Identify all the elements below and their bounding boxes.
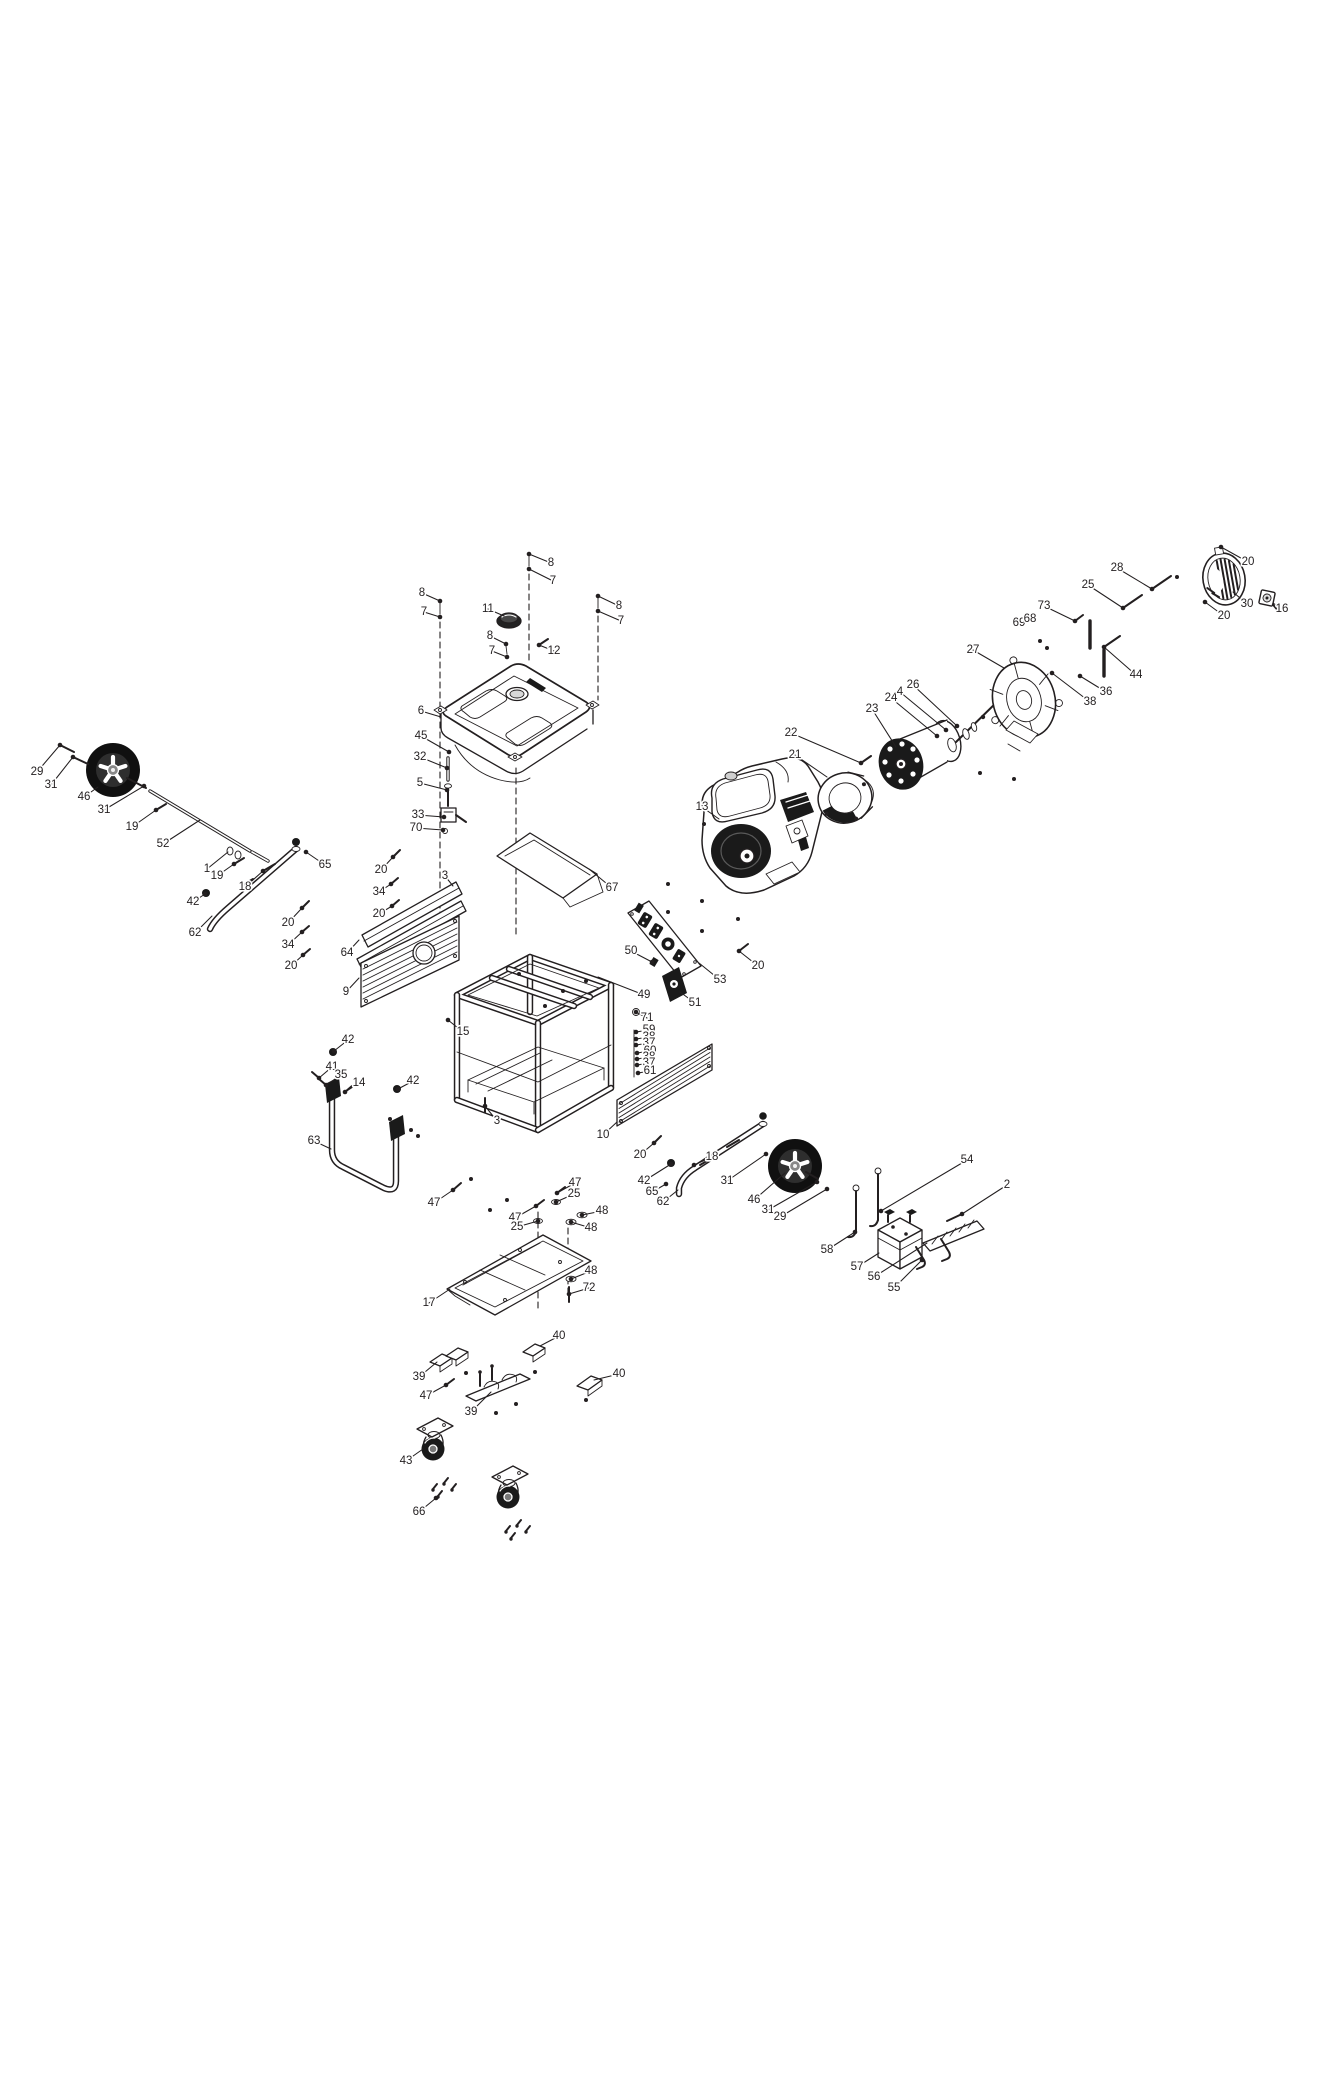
callout-31: 31 <box>721 1152 769 1187</box>
svg-text:72: 72 <box>583 1282 596 1294</box>
svg-text:45: 45 <box>415 730 428 742</box>
svg-text:7: 7 <box>550 575 556 587</box>
callout-71: 71 <box>634 1010 654 1024</box>
svg-text:31: 31 <box>98 804 111 816</box>
svg-text:52: 52 <box>157 838 170 850</box>
callout-46: 46 <box>748 1173 785 1206</box>
fuel-cap <box>497 613 521 628</box>
callout-73: 73 <box>1038 600 1078 623</box>
svg-text:56: 56 <box>868 1271 881 1283</box>
svg-text:7: 7 <box>618 615 624 627</box>
callout-65: 65 <box>304 850 332 871</box>
fuel-valve <box>441 758 466 834</box>
heat-shield <box>497 833 603 907</box>
callout-19: 19 <box>211 862 237 882</box>
svg-text:18: 18 <box>706 1151 719 1163</box>
svg-text:42: 42 <box>342 1034 355 1046</box>
svg-text:47: 47 <box>428 1197 441 1209</box>
callout-17: 17 <box>423 1289 450 1309</box>
callout-20: 20 <box>737 949 765 972</box>
svg-text:5: 5 <box>417 777 423 789</box>
svg-text:22: 22 <box>785 727 798 739</box>
svg-text:64: 64 <box>341 947 354 959</box>
callout-19: 19 <box>126 808 159 833</box>
svg-text:13: 13 <box>696 801 709 813</box>
svg-text:51: 51 <box>689 997 702 1009</box>
svg-text:29: 29 <box>31 766 44 778</box>
svg-text:14: 14 <box>353 1077 366 1089</box>
callout-10: 10 <box>597 1122 617 1141</box>
callout-34: 34 <box>282 930 305 951</box>
callout-25: 25 <box>1082 579 1126 610</box>
svg-text:43: 43 <box>400 1455 413 1467</box>
callout-20: 20 <box>282 906 305 929</box>
callout-20: 20 <box>634 1141 657 1161</box>
svg-text:17: 17 <box>423 1297 436 1309</box>
callout-54: 54 <box>879 1154 974 1213</box>
svg-text:62: 62 <box>189 927 202 939</box>
svg-text:48: 48 <box>585 1265 598 1277</box>
callout-20: 20 <box>375 855 396 876</box>
callout-12: 12 <box>537 643 561 657</box>
svg-text:23: 23 <box>866 703 879 715</box>
diagram-svg: 8787871112876453253370293146311952119184… <box>0 0 1330 2100</box>
svg-text:25: 25 <box>568 1188 581 1200</box>
callout-2: 2 <box>960 1179 1011 1216</box>
frame <box>457 957 611 1130</box>
callout-48: 48 <box>580 1205 609 1217</box>
callout-44: 44 <box>1102 645 1143 681</box>
callout-52: 52 <box>157 820 200 850</box>
bracket-39b <box>466 1364 530 1401</box>
callout-38: 38 <box>1050 671 1097 708</box>
callout-64: 64 <box>341 940 359 959</box>
callout-47: 47 <box>420 1383 449 1402</box>
callout-58: 58 <box>821 1230 858 1256</box>
control-panel <box>628 901 701 978</box>
svg-text:40: 40 <box>553 1330 566 1342</box>
svg-text:3: 3 <box>494 1115 500 1127</box>
callout-42: 42 <box>187 892 208 908</box>
svg-text:53: 53 <box>714 974 727 986</box>
callout-39: 39 <box>413 1362 437 1383</box>
callout-8: 8 <box>419 587 443 603</box>
svg-text:66: 66 <box>413 1506 426 1518</box>
svg-text:33: 33 <box>412 809 425 821</box>
svg-text:20: 20 <box>375 864 388 876</box>
svg-text:28: 28 <box>1111 562 1124 574</box>
callout-61: 61 <box>636 1065 657 1077</box>
callout-36: 36 <box>1078 674 1113 698</box>
louver-panel-right <box>617 1044 712 1126</box>
callout-25: 25 <box>511 1219 541 1233</box>
callout-40: 40 <box>540 1330 565 1346</box>
svg-text:44: 44 <box>1130 669 1143 681</box>
callout-25: 25 <box>554 1188 581 1204</box>
svg-text:46: 46 <box>748 1194 761 1206</box>
callout-51: 51 <box>680 992 701 1009</box>
svg-text:31: 31 <box>762 1204 775 1216</box>
callouts-layer: 8787871112876453253370293146311952119184… <box>31 545 1289 1518</box>
callout-43: 43 <box>400 1449 423 1467</box>
callout-63: 63 <box>308 1135 331 1149</box>
callout-23: 23 <box>866 703 896 747</box>
outlet-twistlock <box>662 938 675 951</box>
caster-rear <box>492 1466 528 1509</box>
stator <box>872 717 965 795</box>
svg-text:10: 10 <box>597 1129 610 1141</box>
svg-text:62: 62 <box>657 1196 670 1208</box>
fan-housing <box>812 766 880 829</box>
svg-text:48: 48 <box>585 1222 598 1234</box>
battery-rods <box>848 1168 881 1237</box>
callout-9: 9 <box>343 978 359 998</box>
svg-text:20: 20 <box>634 1149 647 1161</box>
engine <box>702 758 823 893</box>
callout-28: 28 <box>1111 562 1155 591</box>
svg-text:21: 21 <box>789 749 802 761</box>
svg-text:20: 20 <box>1218 610 1231 622</box>
svg-text:47: 47 <box>420 1390 433 1402</box>
svg-text:12: 12 <box>548 645 561 657</box>
skid-plate <box>447 1235 591 1315</box>
battery-bracket <box>923 1220 984 1251</box>
callout-32: 32 <box>414 751 450 770</box>
callout-24: 24 <box>885 692 940 738</box>
svg-text:8: 8 <box>419 587 425 599</box>
svg-text:35: 35 <box>335 1069 348 1081</box>
svg-text:65: 65 <box>319 859 332 871</box>
svg-text:68: 68 <box>1024 613 1037 625</box>
callout-20: 20 <box>373 904 395 920</box>
svg-text:7: 7 <box>489 645 495 657</box>
callout-3: 3 <box>442 870 453 886</box>
callout-68: 68 <box>1024 613 1037 625</box>
svg-text:63: 63 <box>308 1135 321 1147</box>
bearing-carrier <box>977 648 1069 781</box>
callout-67: 67 <box>589 869 618 894</box>
callout-50: 50 <box>625 945 655 964</box>
svg-text:58: 58 <box>821 1244 834 1256</box>
callout-8: 8 <box>487 630 509 646</box>
svg-text:54: 54 <box>961 1154 974 1166</box>
callout-8: 8 <box>596 594 623 612</box>
svg-text:29: 29 <box>774 1211 787 1223</box>
svg-text:34: 34 <box>282 939 295 951</box>
svg-text:39: 39 <box>413 1371 426 1383</box>
svg-text:11: 11 <box>482 603 494 615</box>
callout-42: 42 <box>332 1034 355 1053</box>
svg-text:20: 20 <box>373 908 386 920</box>
svg-text:19: 19 <box>126 821 139 833</box>
svg-text:73: 73 <box>1038 600 1051 612</box>
svg-text:25: 25 <box>511 1221 524 1233</box>
svg-text:27: 27 <box>967 644 980 656</box>
svg-text:50: 50 <box>625 945 638 957</box>
callout-16: 16 <box>1273 603 1288 615</box>
svg-text:61: 61 <box>644 1065 657 1077</box>
callout-42: 42 <box>396 1075 420 1091</box>
svg-text:48: 48 <box>596 1205 609 1217</box>
svg-text:31: 31 <box>721 1175 734 1187</box>
svg-text:46: 46 <box>78 791 91 803</box>
svg-text:67: 67 <box>606 882 619 894</box>
callout-27: 27 <box>967 644 1004 668</box>
callout-53: 53 <box>699 963 726 986</box>
callout-11: 11 <box>482 603 504 616</box>
callout-8: 8 <box>527 552 555 569</box>
svg-text:8: 8 <box>548 557 554 569</box>
svg-text:71: 71 <box>641 1012 654 1024</box>
fuel-tank <box>434 664 599 782</box>
callout-48: 48 <box>569 1220 598 1234</box>
svg-text:40: 40 <box>613 1368 626 1380</box>
callout-20: 20 <box>285 953 306 972</box>
caster-front <box>417 1418 453 1461</box>
svg-text:8: 8 <box>616 600 622 612</box>
svg-text:55: 55 <box>888 1282 901 1294</box>
svg-text:20: 20 <box>282 917 295 929</box>
svg-text:9: 9 <box>343 986 349 998</box>
svg-text:30: 30 <box>1241 598 1254 610</box>
svg-text:1: 1 <box>204 863 210 875</box>
callout-62: 62 <box>657 1190 678 1208</box>
callout-66: 66 <box>413 1496 439 1518</box>
svg-text:57: 57 <box>851 1261 864 1273</box>
svg-text:70: 70 <box>410 822 423 834</box>
axle-rod <box>150 791 268 864</box>
left-wheel <box>86 743 140 797</box>
svg-text:42: 42 <box>187 896 200 908</box>
tank-mount-bolts <box>440 556 598 654</box>
svg-text:49: 49 <box>638 989 651 1001</box>
svg-text:16: 16 <box>1276 603 1289 615</box>
svg-text:34: 34 <box>373 886 386 898</box>
callout-34: 34 <box>373 882 394 898</box>
callout-57: 57 <box>851 1253 879 1273</box>
bracket-39a <box>430 1348 468 1372</box>
callout-72: 72 <box>567 1282 596 1296</box>
svg-text:26: 26 <box>907 679 920 691</box>
svg-text:15: 15 <box>457 1026 470 1038</box>
callout-31: 31 <box>45 755 76 791</box>
right-wheel <box>768 1139 822 1193</box>
svg-text:18: 18 <box>239 881 252 893</box>
svg-text:38: 38 <box>1084 696 1097 708</box>
svg-text:8: 8 <box>487 630 493 642</box>
svg-text:7: 7 <box>421 606 427 618</box>
svg-text:6: 6 <box>418 705 424 717</box>
svg-text:20: 20 <box>1242 556 1255 568</box>
callout-47: 47 <box>428 1188 456 1209</box>
svg-text:39: 39 <box>465 1406 478 1418</box>
svg-text:3: 3 <box>442 870 448 882</box>
bracket-40a <box>523 1344 545 1362</box>
callout-29: 29 <box>31 743 63 778</box>
callout-46: 46 <box>78 787 98 803</box>
callout-7: 7 <box>527 567 557 587</box>
svg-text:4: 4 <box>897 686 904 698</box>
exploded-parts-diagram: 8787871112876453253370293146311952119184… <box>0 0 1330 2100</box>
svg-text:2: 2 <box>1004 1179 1010 1191</box>
svg-text:31: 31 <box>45 779 58 791</box>
svg-text:19: 19 <box>211 870 224 882</box>
callout-7: 7 <box>421 606 443 619</box>
svg-text:20: 20 <box>285 960 298 972</box>
svg-text:36: 36 <box>1100 686 1113 698</box>
svg-text:32: 32 <box>414 751 427 763</box>
caster-screws <box>431 1478 530 1541</box>
svg-text:25: 25 <box>1082 579 1095 591</box>
svg-text:20: 20 <box>752 960 765 972</box>
svg-text:42: 42 <box>407 1075 420 1087</box>
